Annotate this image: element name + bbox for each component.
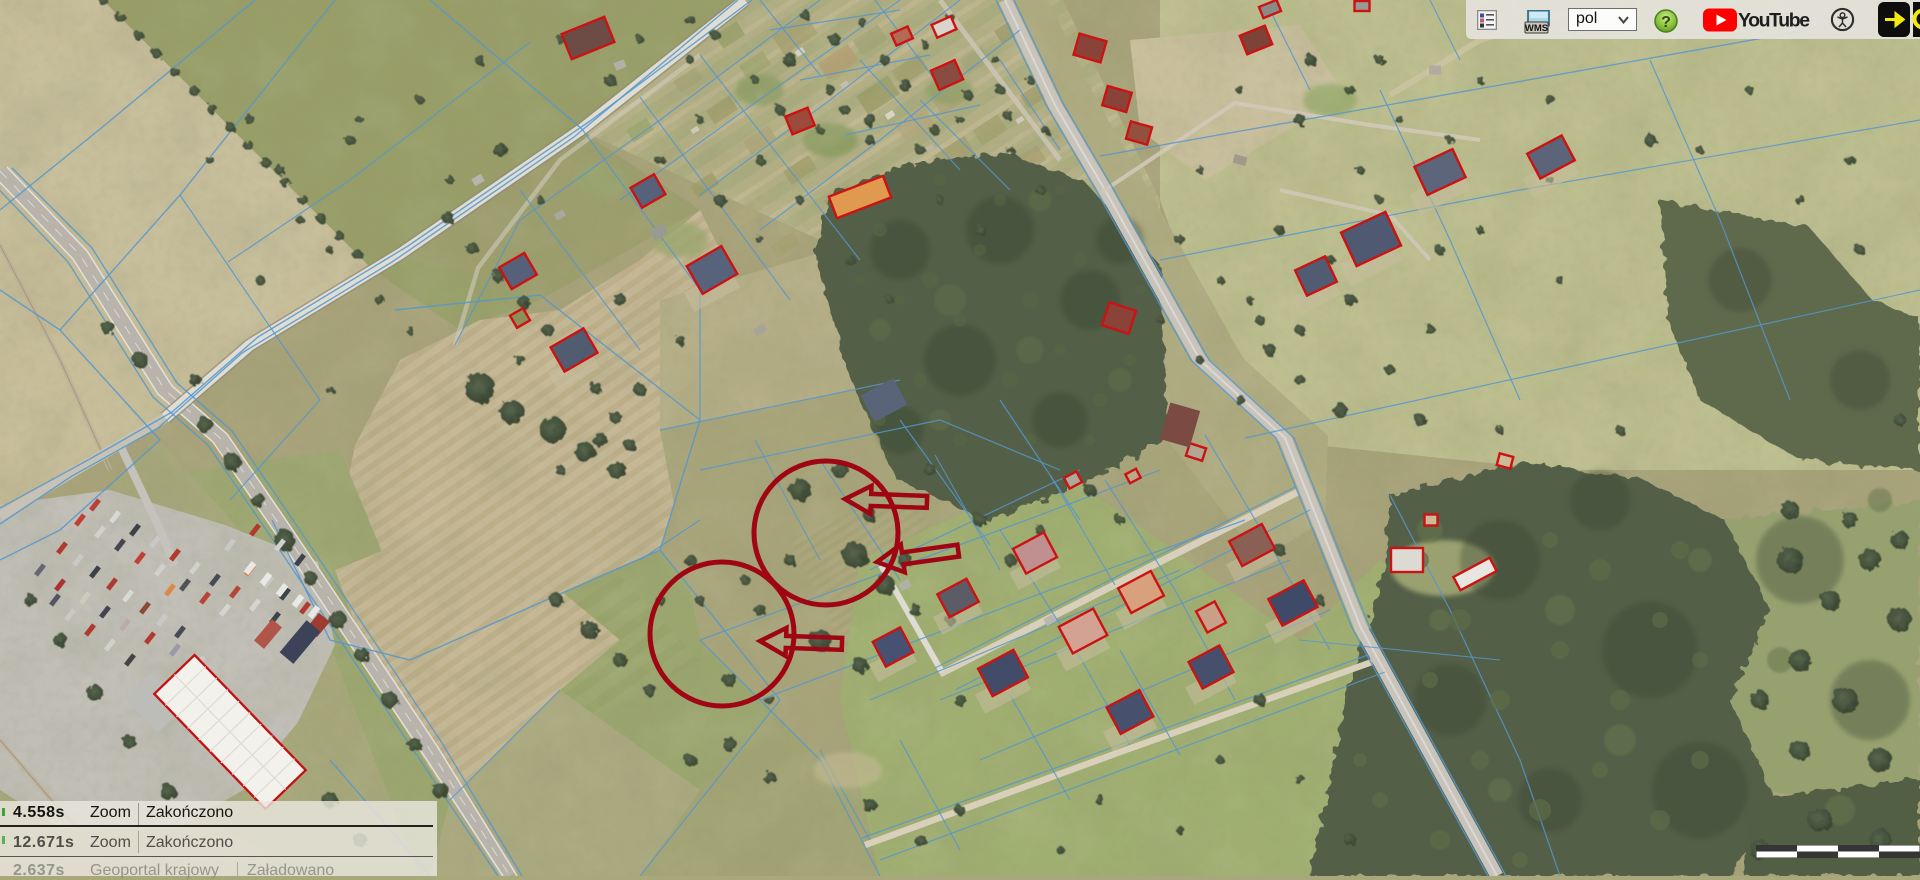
svg-text:?: ? — [1661, 14, 1671, 31]
svg-text:YouTube: YouTube — [1738, 10, 1810, 32]
svg-text:WMS: WMS — [1525, 23, 1548, 34]
